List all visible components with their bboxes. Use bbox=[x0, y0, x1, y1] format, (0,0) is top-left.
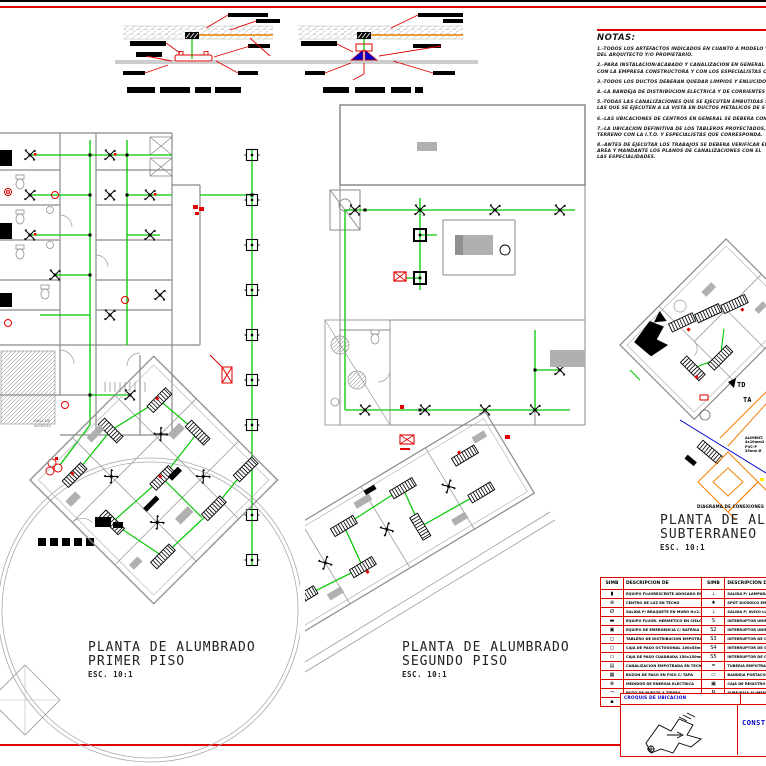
legend-header-row: SIMB DESCRIPCION DE SIMBOLOGIA SIMB DESC… bbox=[601, 578, 766, 590]
legend-header-desc1: DESCRIPCION DE SIMBOLOGIA bbox=[624, 578, 703, 589]
titleblock-right-text: CONST bbox=[738, 705, 766, 755]
feeder-note: ALIMENT. 4x10mm2 PVC-P 25mm Ø bbox=[745, 436, 766, 454]
symbol-description: CAJA DE REGISTRO EN PISO bbox=[725, 680, 766, 688]
symbol-description: EQUIPO DE EMERGENCIA C/ BATERIA 2 LAMP. bbox=[624, 626, 703, 634]
legend-rows: ▮ EQUIPO FLUORESCENTE ADOSADO EN CIELO R… bbox=[601, 590, 766, 706]
symbol-glyph: S5 bbox=[702, 653, 725, 661]
symbol-description: CENTRO DE LUZ EN TECHO bbox=[624, 599, 703, 607]
symbol-description: CAJA DE PASO CUADRADA 150x150mm bbox=[624, 653, 703, 661]
symbol-description: SALIDA P/ AVISO LUMINOSO bbox=[725, 608, 766, 616]
symbol-glyph: ▭ bbox=[601, 653, 624, 661]
symbol-glyph: ⊕ bbox=[601, 599, 624, 607]
symbol-description: TABLERO DE DISTRIBUCION EMPOTRADO bbox=[624, 635, 703, 643]
note-item: 4.-LA BANDEJA DE DISTRIBUCION ELECTRICA … bbox=[597, 90, 766, 96]
symbol-glyph: S3 bbox=[702, 635, 725, 643]
symbol-glyph: ⊗ bbox=[601, 680, 624, 688]
note-item: 3.-TODOS LOS DUCTOS DEBERAN QUEDAR LIMPI… bbox=[597, 80, 766, 86]
symbol-description: SPOT DICROICO EMPOTRADO EN CIELO bbox=[725, 599, 766, 607]
plan2-scale: ESC. 10:1 bbox=[402, 670, 570, 679]
legend-row: ▣ EQUIPO DE EMERGENCIA C/ BATERIA 2 LAMP… bbox=[601, 626, 766, 635]
legend-row: ▤ CANALIZACION EMPOTRADA EN TECHO O MURO… bbox=[601, 662, 766, 671]
legend-row: ◻ TABLERO DE DISTRIBUCION EMPOTRADO S3 I… bbox=[601, 635, 766, 644]
symbol-description: SALIDA P/ LAMPARA DE EMERGENCIA bbox=[725, 590, 766, 598]
plan3-drawing bbox=[610, 230, 766, 520]
plan2-title-line1: PLANTA DE ALUMBRADO bbox=[402, 641, 570, 655]
location-label: CROQUIS DE UBICACION bbox=[621, 694, 741, 704]
symbol-description: INTERRUPTOR UNIPOLAR SIMPLE H=1.40 bbox=[725, 617, 766, 625]
symbol-glyph: ▣ bbox=[702, 680, 725, 688]
cad-sheet: { "sheet": { "accent_red": "#e00000", "c… bbox=[0, 0, 766, 766]
plan1-title: PLANTA DE ALUMBRADO PRIMER PISO ESC. 10:… bbox=[88, 641, 256, 679]
symbol-glyph: ▣ bbox=[601, 626, 624, 634]
legend-row: ▬ EQUIPO FLUOR. HERMETICO EN CIELO S INT… bbox=[601, 617, 766, 626]
symbol-description: EQUIPO FLUORESCENTE ADOSADO EN CIELO RAS… bbox=[624, 590, 703, 598]
plan1-scale: ESC. 10:1 bbox=[88, 670, 256, 679]
legend-row: ⊕ CENTRO DE LUZ EN TECHO ♦ SPOT DICROICO… bbox=[601, 599, 766, 608]
notes-block: NOTAS: 1.-TODOS LOS ARTEFACTOS INDICADOS… bbox=[597, 33, 766, 166]
symbol-glyph: ◻ bbox=[601, 635, 624, 643]
diagram-caption: DIAGRAMA DE CONEXIONES bbox=[697, 504, 764, 509]
ta-label: TA bbox=[743, 396, 751, 404]
note-item: 1.-TODOS LOS ARTEFACTOS INDICADOS EN CUA… bbox=[597, 47, 766, 59]
legend-header-simb1: SIMB bbox=[601, 578, 624, 589]
plan2-title: PLANTA DE ALUMBRADO SEGUNDO PISO ESC. 10… bbox=[402, 641, 570, 679]
symbol-description: MEDIDOR DE ENERGIA ELECTRICA bbox=[624, 680, 703, 688]
symbol-glyph: S2 bbox=[702, 626, 725, 634]
symbol-glyph: ▦ bbox=[601, 671, 624, 679]
symbol-description: INTERRUPTOR UNIPOLAR DOBLE H=1.40 bbox=[725, 626, 766, 634]
symbol-glyph: ⊥ bbox=[702, 590, 725, 598]
detail-1-drawing bbox=[110, 8, 300, 102]
symbol-glyph: ▮ bbox=[601, 590, 624, 598]
legend-row: ▭ CAJA DE PASO CUADRADA 150x150mm S5 INT… bbox=[601, 653, 766, 662]
symbol-glyph: ⊥ bbox=[702, 608, 725, 616]
symbol-glyph: S4 bbox=[702, 644, 725, 652]
plan2-title-line2: SEGUNDO PISO bbox=[402, 655, 570, 669]
symbol-description: CAJA DE PASO OCTOGONAL 100x55mm bbox=[624, 644, 703, 652]
title-block-header: CROQUIS DE UBICACION bbox=[621, 694, 766, 705]
legend-row: ⊗ MEDIDOR DE ENERGIA ELECTRICA ▣ CAJA DE… bbox=[601, 680, 766, 689]
legend-row: Ø SALIDA P/ BRAQUETE EN MURO H=2.20 ⊥ SA… bbox=[601, 608, 766, 617]
symbol-glyph: ♦ bbox=[702, 599, 725, 607]
symbol-glyph: Ø bbox=[601, 608, 624, 616]
plan2-drawing bbox=[305, 80, 605, 680]
notes-divider-line bbox=[597, 29, 766, 31]
title-block: CROQUIS DE UBICACION CONST bbox=[620, 693, 766, 757]
symbol-description: INTERRUPTOR DE CONMUTACION SIMPLE bbox=[725, 635, 766, 643]
plan3-scale: ESC. 10:1 bbox=[660, 543, 766, 552]
td-label: TD bbox=[737, 381, 745, 389]
sheet-top-edge bbox=[0, 0, 766, 2]
symbol-glyph: ▬ bbox=[601, 617, 624, 625]
symbol-description: CANALIZACION EMPOTRADA EN TECHO O MURO bbox=[624, 662, 703, 670]
legend-header-desc2: DESCRIPCION DE SIMBOLOGIA bbox=[725, 578, 766, 589]
note-item: 6.-LAS UBICACIONES DE CENTROS EN GENERAL… bbox=[597, 117, 766, 123]
note-item: 5.-TODAS LAS CANALIZACIONES QUE SE EJECU… bbox=[597, 100, 766, 112]
plan3-title: PLANTA DE ALUMBRADO SUBTERRANEO ESC. 10:… bbox=[660, 514, 766, 552]
plan3-title-line2: SUBTERRANEO bbox=[660, 528, 766, 542]
legend-row: ○ CAJA DE PASO OCTOGONAL 100x55mm S4 INT… bbox=[601, 644, 766, 653]
symbol-glyph: = bbox=[702, 662, 725, 670]
notes-list: 1.-TODOS LOS ARTEFACTOS INDICADOS EN CUA… bbox=[597, 47, 766, 162]
location-map-sketch bbox=[621, 705, 737, 755]
symbol-glyph: ○ bbox=[601, 644, 624, 652]
legend-header-simb2: SIMB bbox=[702, 578, 725, 589]
note-item: 8.-ANTES DE EJECUTAR LOS TRABAJOS SE DEB… bbox=[597, 143, 766, 162]
symbol-glyph: ▤ bbox=[601, 662, 624, 670]
symbol-description: BANDEJA PORTACONDUCTORES bbox=[725, 671, 766, 679]
symbol-description: TUBERIA EMPOTRADA EN PISO bbox=[725, 662, 766, 670]
symbol-description: BUZON DE PASO EN PISO C/ TAPA bbox=[624, 671, 703, 679]
legend-row: ▦ BUZON DE PASO EN PISO C/ TAPA ▭ BANDEJ… bbox=[601, 671, 766, 680]
symbol-description: SALIDA P/ BRAQUETE EN MURO H=2.20 bbox=[624, 608, 703, 616]
symbol-description: INTERRUPTOR DE CONMUTACION DOBLE bbox=[725, 644, 766, 652]
note-item: 7.-LA UBICACION DEFINITIVA DE LOS TABLER… bbox=[597, 127, 766, 139]
note-item: 2.-PARA INSTALACION/ACABADO Y CANALIZACI… bbox=[597, 63, 766, 75]
symbol-glyph: S bbox=[702, 617, 725, 625]
symbol-description: INTERRUPTOR DE CONMUTACION TRIPLE bbox=[725, 653, 766, 661]
plan3-title-line1: PLANTA DE ALUMBRADO bbox=[660, 514, 766, 528]
symbol-description: EQUIPO FLUOR. HERMETICO EN CIELO bbox=[624, 617, 703, 625]
notes-title: NOTAS: bbox=[597, 33, 766, 43]
plan1-title-line2: PRIMER PISO bbox=[88, 655, 256, 669]
hall-label: HALL DE INGRESO bbox=[34, 419, 51, 428]
symbol-glyph: ▭ bbox=[702, 671, 725, 679]
legend-table: SIMB DESCRIPCION DE SIMBOLOGIA SIMB DESC… bbox=[600, 577, 766, 707]
plan1-title-line1: PLANTA DE ALUMBRADO bbox=[88, 641, 256, 655]
location-map-cell bbox=[621, 705, 738, 755]
legend-row: ▮ EQUIPO FLUORESCENTE ADOSADO EN CIELO R… bbox=[601, 590, 766, 599]
